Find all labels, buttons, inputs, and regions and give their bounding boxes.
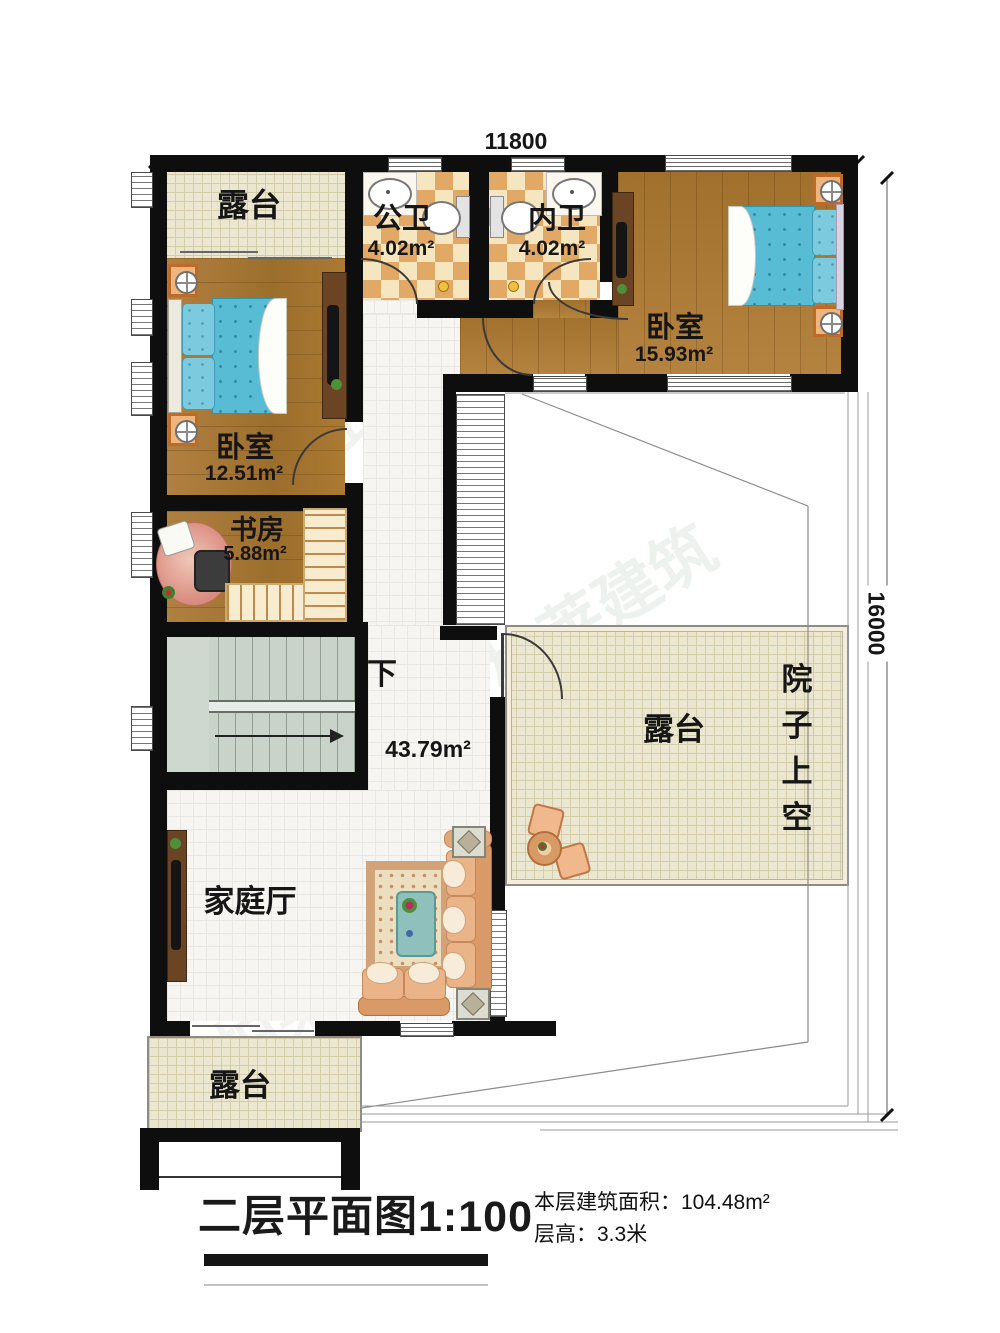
wall-bath-divider (469, 172, 489, 300)
window-bedroom-right-bottom (667, 376, 792, 392)
room-label-family: 家庭厅 (204, 886, 297, 917)
wall-porch-right (341, 1128, 360, 1190)
room-label-bedroom-right: 卧室 (646, 314, 704, 343)
sofa-pillow (442, 860, 466, 888)
tv-icon (171, 860, 181, 950)
courtyard-char: 上 (780, 756, 814, 787)
area-label-private-bath: 4.02m² (519, 238, 586, 259)
area-label-bedroom-left: 12.51m² (205, 463, 283, 484)
wall-corridor-bottom-c (790, 374, 858, 392)
bed-headboard (836, 204, 844, 310)
wardrobe-horizontal (225, 583, 305, 622)
wardrobe-vertical (303, 508, 347, 622)
bed-pillow (812, 209, 839, 256)
plant-icon (331, 379, 342, 390)
sink-drain-dot (570, 190, 574, 194)
window-family-courtyard (490, 910, 507, 1017)
room-label-bedroom-left: 卧室 (216, 434, 274, 463)
stair-down-label: 下 (367, 660, 397, 690)
sofa-pillow (366, 962, 398, 984)
stair-arrow-head (330, 729, 344, 743)
window-bedroom-right-top (665, 155, 792, 172)
courtyard-char: 空 (780, 802, 814, 833)
title-underline-bar (204, 1254, 488, 1266)
room-label-private-bath: 内卫 (528, 205, 586, 234)
wall-terrace-connector (440, 626, 497, 640)
courtyard-char: 院 (780, 664, 814, 695)
room-label-terrace-bottom: 露台 (209, 1070, 271, 1101)
tv-icon (616, 222, 627, 278)
window-study (131, 512, 153, 578)
area-label-hall: 43.79m² (385, 738, 471, 761)
sink-drain-dot (386, 190, 390, 194)
info-floor-area: 本层建筑面积：104.48m² (534, 1186, 770, 1216)
window-private-bath (511, 157, 565, 172)
wall-corridor-bottom-b (585, 374, 667, 392)
room-label-terrace-middle: 露台 (643, 714, 705, 745)
window-family-bottom (400, 1023, 454, 1037)
room-label-study: 书房 (230, 517, 284, 544)
plant-icon (617, 284, 627, 294)
flower-icon (538, 842, 547, 851)
sofa-pillow (442, 906, 466, 934)
wall-bath-bottom-a (345, 300, 361, 318)
bed-sheet-fold (258, 298, 287, 414)
window-bedroom-left-2 (131, 362, 153, 416)
courtyard-char: 子 (780, 710, 814, 741)
wall-bath-bottom-b (417, 300, 533, 318)
title-underline-thin (204, 1284, 488, 1286)
plant-stand (452, 826, 486, 858)
wall-corridor-bottom-a (443, 374, 533, 392)
sofa-pillow (408, 962, 440, 984)
room-label-courtyard: 院 子 上 空 (780, 664, 814, 833)
wall-family-right-a (490, 697, 505, 910)
plant-icon (170, 838, 181, 849)
nightstand (168, 264, 198, 297)
wall-hallway-right (443, 392, 456, 625)
door-terrace-leaf (501, 633, 504, 697)
window-stairs (131, 706, 153, 751)
window-terrace-left (131, 172, 153, 208)
flower-icon (402, 898, 417, 913)
room-label-terrace-top: 露台 (217, 189, 281, 221)
bed-pillow (812, 257, 839, 304)
tv-icon (327, 305, 339, 385)
page-title: 二层平面图1:100 (198, 1182, 533, 1244)
porch-bottom-line (159, 1176, 341, 1178)
nightstand (813, 174, 843, 205)
bed-pillow (182, 303, 215, 356)
window-bedroom-left-1 (131, 299, 153, 336)
area-label-bedroom-right: 15.93m² (635, 344, 713, 365)
window-public-bath (388, 157, 442, 172)
room-label-public-bath: 公卫 (373, 205, 431, 234)
info-floor-height: 层高：3.3米 (534, 1218, 647, 1248)
wall-family-bottom-a (150, 1021, 190, 1036)
bed-pillow (182, 357, 215, 410)
dimension-right: 16000 (865, 586, 888, 662)
wall-porch-top (140, 1128, 360, 1142)
wall-study-bottom (150, 622, 368, 637)
flower-icon (162, 586, 175, 599)
stair-rail (209, 700, 355, 713)
floor-drain (438, 281, 449, 292)
floor-drain (508, 281, 519, 292)
wall-porch-left (140, 1128, 159, 1190)
dimension-top: 11800 (479, 130, 554, 153)
area-label-public-bath: 4.02m² (368, 238, 435, 259)
window-hallway-courtyard (456, 394, 505, 625)
window-corridor-bottom (533, 376, 587, 392)
wall-family-bottom-c (452, 1021, 556, 1036)
wall-family-bottom-b (315, 1021, 400, 1036)
plant-stand (456, 988, 490, 1020)
bed-headboard (168, 299, 182, 413)
floor-plan: 柏莱建筑 柏莱建筑 柏莱建筑 (0, 0, 1000, 1333)
nightstand (168, 413, 198, 446)
wall-stair-bottom (150, 772, 368, 790)
nightstand (813, 306, 843, 337)
area-label-study: 5.88m² (223, 544, 286, 564)
table-dot (406, 930, 413, 937)
